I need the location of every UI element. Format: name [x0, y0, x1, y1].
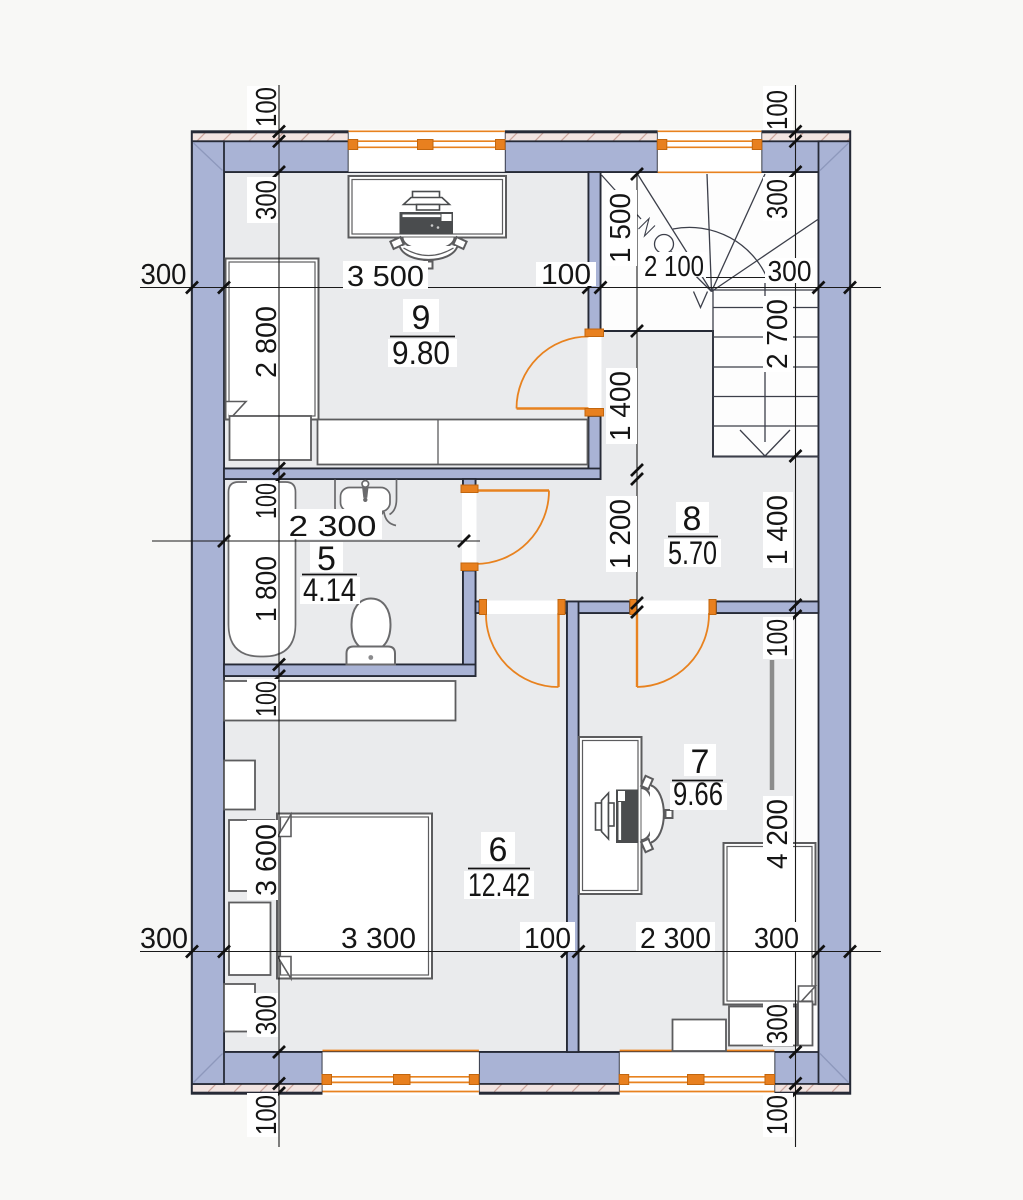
svg-text:3 500: 3 500: [347, 261, 424, 293]
svg-text:2 300: 2 300: [289, 511, 377, 543]
svg-text:300: 300: [762, 1004, 794, 1044]
svg-text:100: 100: [762, 90, 794, 130]
svg-text:9.80: 9.80: [392, 335, 450, 371]
svg-text:8: 8: [683, 500, 702, 538]
svg-text:1 500: 1 500: [605, 193, 637, 263]
svg-text:2 800: 2 800: [251, 306, 283, 378]
svg-text:100: 100: [762, 1095, 794, 1135]
svg-text:2 300: 2 300: [640, 923, 711, 955]
svg-text:2 700: 2 700: [762, 299, 794, 369]
svg-text:6: 6: [489, 831, 508, 869]
svg-text:1 200: 1 200: [605, 499, 637, 569]
svg-text:1 800: 1 800: [251, 556, 283, 622]
svg-text:9: 9: [412, 299, 431, 337]
svg-text:300: 300: [251, 180, 283, 220]
svg-text:3 300: 3 300: [341, 923, 416, 955]
svg-text:100: 100: [524, 923, 571, 955]
svg-text:100: 100: [541, 259, 591, 291]
svg-text:100: 100: [251, 87, 283, 127]
svg-text:9.66: 9.66: [673, 776, 723, 812]
svg-text:300: 300: [251, 995, 283, 1035]
svg-text:5.70: 5.70: [668, 535, 717, 571]
svg-text:4.14: 4.14: [303, 572, 356, 608]
svg-text:100: 100: [762, 619, 794, 657]
svg-text:1 400: 1 400: [762, 495, 794, 565]
svg-text:300: 300: [754, 923, 799, 955]
svg-text:300: 300: [141, 259, 187, 291]
svg-text:100: 100: [251, 1095, 283, 1135]
svg-text:3 600: 3 600: [251, 824, 283, 896]
svg-text:2 100: 2 100: [644, 251, 704, 283]
svg-text:300: 300: [762, 179, 794, 219]
svg-text:300: 300: [140, 923, 188, 955]
svg-text:100: 100: [251, 681, 283, 717]
svg-text:12.42: 12.42: [468, 867, 530, 903]
svg-text:100: 100: [251, 483, 283, 519]
svg-text:1 400: 1 400: [605, 371, 637, 441]
svg-text:300: 300: [768, 256, 812, 288]
svg-text:4 200: 4 200: [762, 799, 794, 869]
